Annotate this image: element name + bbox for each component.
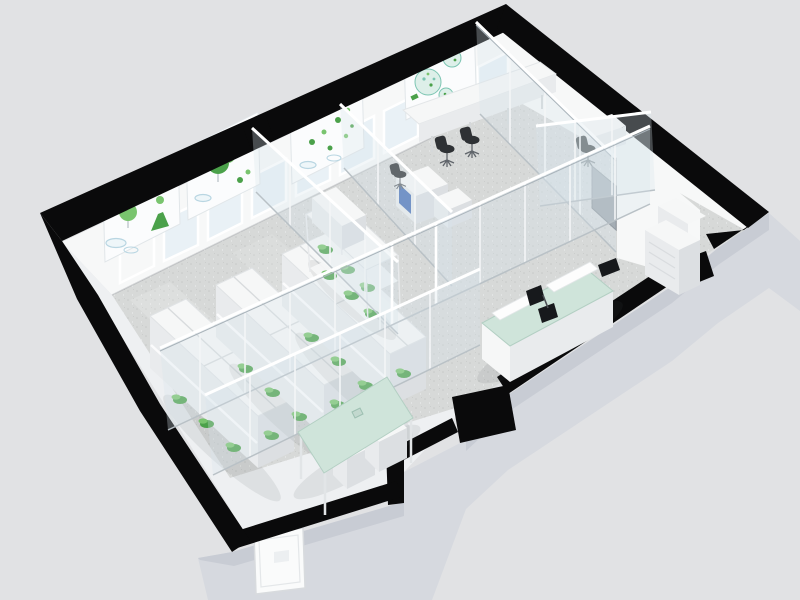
scene-canvas: 3D isometric cutaway rendering of a labo… xyxy=(0,0,800,600)
door-vent xyxy=(274,550,289,563)
lab-floorplan-render: 3D isometric cutaway rendering of a labo… xyxy=(0,0,800,600)
